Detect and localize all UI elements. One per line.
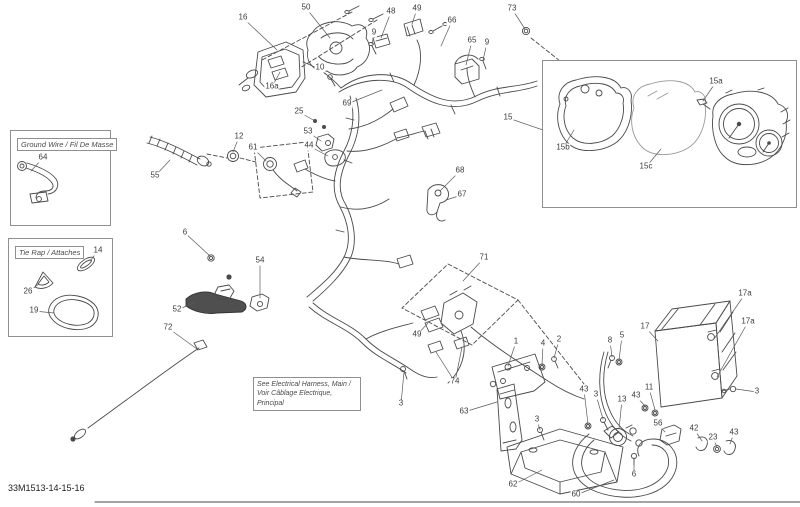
callout-5: 5 (619, 332, 625, 341)
callout-71: 71 (479, 254, 490, 263)
callout-15: 15 (503, 114, 514, 123)
callout-3: 3 (534, 416, 540, 425)
callout-16: 16 (238, 14, 249, 23)
callout-1: 1 (513, 338, 519, 347)
callout-64: 64 (38, 154, 49, 163)
tray-art (507, 405, 735, 497)
callout-69: 69 (342, 100, 353, 109)
callout-65: 65 (467, 37, 478, 46)
callout-13: 13 (617, 396, 628, 405)
top-harness-art (303, 40, 537, 114)
callout-49: 49 (412, 331, 423, 340)
callout-6: 6 (631, 471, 637, 480)
mount-bracket-art (490, 352, 633, 451)
callout-43: 43 (631, 392, 642, 401)
callout-10: 10 (315, 64, 326, 73)
ground-wire-box: Ground Wire / Fil De Masse (10, 130, 111, 226)
callout-54: 54 (255, 257, 266, 266)
callout-17: 17 (640, 323, 651, 332)
part-number-code: 33M1513-14-15-16 (8, 483, 85, 493)
callout-19: 19 (29, 307, 40, 316)
callout-25: 25 (294, 108, 305, 117)
callout-3: 3 (398, 400, 404, 409)
callout-44: 44 (304, 142, 315, 151)
mid-harness-art (147, 96, 449, 301)
callout-26: 26 (23, 288, 34, 297)
callout-63: 63 (459, 408, 470, 417)
callout-42: 42 (689, 425, 700, 434)
callout-73: 73 (507, 5, 518, 14)
callout-72: 72 (163, 324, 174, 333)
callout-8: 8 (607, 337, 613, 346)
callout-43: 43 (579, 386, 590, 395)
callout-15a: 15a (708, 78, 723, 87)
callout-74: 74 (450, 378, 461, 387)
battery-art (655, 301, 737, 407)
harness-note-line2: Voir Câblage Electrique, Principal (257, 389, 357, 408)
callout-52: 52 (172, 306, 183, 315)
parts-diagram-page: Ground Wire / Fil De Masse Tie Rap / Att… (0, 0, 800, 507)
callout-6: 6 (182, 229, 188, 238)
callout-61: 61 (248, 144, 259, 153)
callout-14: 14 (93, 247, 104, 256)
callout-4: 4 (540, 340, 546, 349)
harness-note-line1: See Electrical Harness, Main / (257, 380, 357, 389)
callout-2: 2 (556, 336, 562, 345)
callout-60: 60 (571, 491, 582, 500)
tie-rap-box-label: Tie Rap / Attaches (15, 246, 84, 259)
callout-49: 49 (412, 5, 423, 14)
harness-note-box: See Electrical Harness, Main / Voir Câbl… (253, 377, 361, 411)
callout-17a: 17a (740, 318, 755, 327)
callout-3: 3 (754, 388, 760, 397)
callout-43: 43 (729, 429, 740, 438)
callout-56: 56 (653, 420, 664, 429)
callout-50: 50 (301, 4, 312, 13)
callout-62: 62 (508, 481, 519, 490)
callout-12: 12 (234, 133, 245, 142)
callout-11: 11 (644, 384, 654, 393)
callout-3: 3 (593, 391, 599, 400)
callout-55: 55 (150, 172, 161, 181)
callout-9: 9 (484, 39, 490, 48)
callout-9: 9 (371, 29, 377, 38)
callout-16a: 16a (264, 83, 279, 92)
callout-48: 48 (386, 8, 397, 17)
callout-15b: 15b (555, 144, 570, 153)
callout-17a: 17a (737, 290, 752, 299)
callout-53: 53 (303, 128, 314, 137)
callout-15c: 15c (639, 163, 654, 172)
top-fasteners-art (345, 6, 530, 69)
gauge-cluster-box (542, 60, 797, 208)
callout-66: 66 (447, 17, 458, 26)
callout-23: 23 (708, 434, 719, 443)
callout-67: 67 (457, 191, 468, 200)
ground-wire-box-label: Ground Wire / Fil De Masse (17, 138, 117, 151)
callout-68: 68 (455, 167, 466, 176)
